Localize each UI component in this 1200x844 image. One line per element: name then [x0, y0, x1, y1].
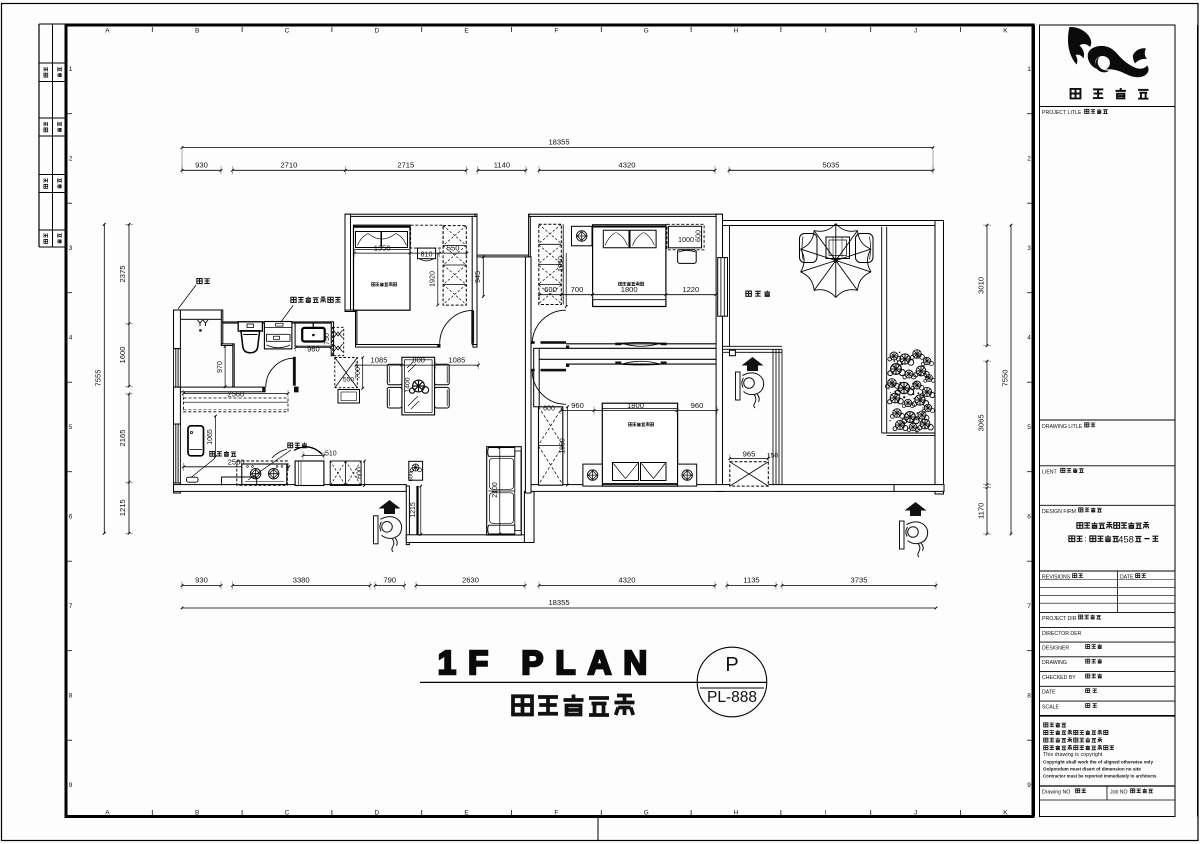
svg-text:DRAWING: DRAWING — [1042, 660, 1067, 666]
svg-text:750: 750 — [324, 333, 331, 345]
svg-text:930: 930 — [195, 576, 208, 585]
svg-text:3380: 3380 — [293, 576, 310, 585]
svg-text:8: 8 — [1027, 693, 1031, 700]
svg-text:2: 2 — [69, 156, 73, 163]
svg-text:SCALE: SCALE — [1042, 705, 1060, 711]
svg-text:1220: 1220 — [682, 285, 699, 294]
svg-text:C: C — [285, 28, 290, 35]
svg-text:1170: 1170 — [977, 503, 986, 519]
svg-text:2165: 2165 — [118, 430, 127, 447]
svg-text::: : — [1084, 535, 1086, 544]
svg-text:DIRECTOR DER: DIRECTOR DER — [1042, 631, 1082, 637]
svg-text:7: 7 — [1027, 603, 1031, 610]
svg-text:H: H — [734, 28, 739, 35]
svg-text:2560: 2560 — [227, 390, 244, 399]
svg-text:4320: 4320 — [619, 576, 636, 585]
svg-text:3: 3 — [1027, 245, 1031, 252]
svg-text:I: I — [825, 28, 827, 35]
svg-text:800: 800 — [412, 356, 425, 365]
svg-text:1400: 1400 — [405, 377, 412, 392]
svg-text:600: 600 — [694, 230, 703, 242]
svg-text:7: 7 — [69, 603, 73, 610]
svg-text:B: B — [195, 810, 199, 817]
svg-text:D: D — [374, 28, 379, 35]
svg-text:J: J — [914, 28, 917, 35]
svg-text:2: 2 — [1027, 156, 1031, 163]
svg-text:DATE: DATE — [1042, 690, 1056, 696]
svg-text:C: C — [285, 810, 290, 817]
svg-text:7550: 7550 — [1001, 370, 1010, 387]
svg-text:DESIGN FIRM: DESIGN FIRM — [1042, 509, 1076, 515]
svg-text:E: E — [464, 28, 469, 35]
svg-text:4: 4 — [69, 335, 73, 342]
svg-text:H: H — [734, 810, 739, 817]
svg-text:965: 965 — [743, 450, 756, 459]
svg-text:1F PLAN: 1F PLAN — [438, 644, 660, 681]
svg-text:945: 945 — [473, 271, 482, 283]
svg-text:8: 8 — [69, 693, 73, 700]
svg-text:PROJECT LITLE: PROJECT LITLE — [1042, 110, 1082, 116]
svg-text:6: 6 — [1027, 514, 1031, 521]
svg-text:1215: 1215 — [118, 499, 127, 516]
svg-text:2715: 2715 — [397, 160, 414, 169]
svg-text:1135: 1135 — [743, 576, 759, 585]
svg-text:18355: 18355 — [548, 598, 569, 607]
svg-text:B: B — [195, 28, 199, 35]
svg-text:930: 930 — [195, 160, 208, 169]
svg-text:K: K — [1003, 810, 1008, 817]
svg-text:F: F — [554, 28, 558, 35]
svg-text:K: K — [1003, 28, 1008, 35]
svg-text:F: F — [554, 810, 558, 817]
svg-text:1600: 1600 — [118, 347, 127, 364]
svg-text:Contractor must be reported im: Contractor must be reported immediately … — [1043, 774, 1157, 779]
svg-text:1065: 1065 — [207, 429, 214, 445]
svg-text:J: J — [914, 810, 917, 817]
svg-text:790: 790 — [383, 576, 396, 585]
svg-text:5: 5 — [1027, 424, 1031, 431]
svg-text:G: G — [644, 810, 649, 817]
svg-text:700: 700 — [571, 285, 584, 294]
svg-text:550: 550 — [343, 377, 355, 384]
svg-text:3: 3 — [69, 245, 73, 252]
svg-text:1: 1 — [1027, 66, 1031, 73]
svg-text:4: 4 — [1027, 335, 1031, 342]
svg-text:E: E — [464, 810, 469, 817]
svg-text:458: 458 — [1118, 534, 1134, 545]
svg-text:1950: 1950 — [560, 438, 567, 454]
svg-text:1920: 1920 — [428, 271, 437, 287]
svg-text:DRAWING LITLE: DRAWING LITLE — [1042, 424, 1083, 430]
svg-text:960: 960 — [307, 345, 320, 354]
svg-text:550: 550 — [447, 244, 460, 253]
svg-text:CHECKED BY: CHECKED BY — [1042, 675, 1076, 681]
svg-text:Job NO: Job NO — [1110, 790, 1128, 796]
svg-text:1085: 1085 — [448, 356, 465, 365]
svg-text:G: G — [644, 28, 649, 35]
svg-text:960: 960 — [691, 401, 704, 410]
svg-text:DESIGNER: DESIGNER — [1042, 646, 1069, 652]
svg-text:LIENT: LIENT — [1042, 470, 1058, 476]
svg-text:P: P — [725, 654, 738, 676]
svg-text:PROJECT DIR: PROJECT DIR — [1042, 616, 1077, 622]
svg-text:7555: 7555 — [94, 370, 103, 387]
svg-text:5035: 5035 — [823, 160, 840, 169]
svg-text:2375: 2375 — [118, 266, 127, 283]
svg-text:1085: 1085 — [371, 356, 388, 365]
svg-text:970: 970 — [217, 361, 224, 373]
svg-text:2710: 2710 — [280, 160, 297, 169]
svg-text:1350: 1350 — [374, 244, 391, 253]
svg-text:D: D — [374, 810, 379, 817]
svg-text:5: 5 — [69, 424, 73, 431]
svg-text:600: 600 — [543, 406, 555, 413]
svg-text:1000: 1000 — [678, 235, 694, 244]
svg-text:1: 1 — [69, 66, 73, 73]
svg-text:Oolpondum must disert of dimen: Oolpondum must disert of dimension no si… — [1043, 767, 1141, 772]
svg-text:This drawing is copyright: This drawing is copyright — [1043, 752, 1103, 758]
svg-text:18355: 18355 — [548, 138, 569, 147]
svg-text:1800: 1800 — [621, 285, 638, 294]
svg-text:Copyright shall work the of al: Copyright shall work the of aligned othe… — [1043, 760, 1153, 765]
svg-text:3065: 3065 — [977, 414, 986, 431]
svg-text:3010: 3010 — [977, 277, 986, 294]
svg-text:Drawing NO: Drawing NO — [1042, 790, 1070, 796]
svg-text:2100: 2100 — [492, 482, 499, 498]
svg-text:4320: 4320 — [619, 160, 636, 169]
svg-text:510: 510 — [325, 451, 337, 458]
svg-text:PL-888: PL-888 — [707, 689, 757, 706]
svg-text:2630: 2630 — [462, 576, 479, 585]
svg-text:A: A — [105, 810, 110, 817]
svg-text:600: 600 — [409, 472, 415, 482]
svg-text:600: 600 — [357, 467, 364, 479]
svg-text:I: I — [825, 810, 827, 817]
svg-text:960: 960 — [571, 401, 584, 410]
svg-text:6: 6 — [69, 514, 73, 521]
svg-text:1800: 1800 — [627, 401, 644, 410]
svg-text:9: 9 — [1027, 782, 1031, 789]
svg-text:A: A — [105, 28, 110, 35]
svg-text:1140: 1140 — [494, 160, 510, 169]
svg-text:3735: 3735 — [851, 576, 868, 585]
svg-text:150: 150 — [767, 453, 779, 460]
svg-text:810: 810 — [421, 250, 433, 259]
svg-text:9: 9 — [69, 782, 73, 789]
svg-text:1950: 1950 — [556, 256, 565, 272]
svg-text:1215: 1215 — [410, 502, 417, 518]
svg-text:600: 600 — [544, 285, 557, 294]
